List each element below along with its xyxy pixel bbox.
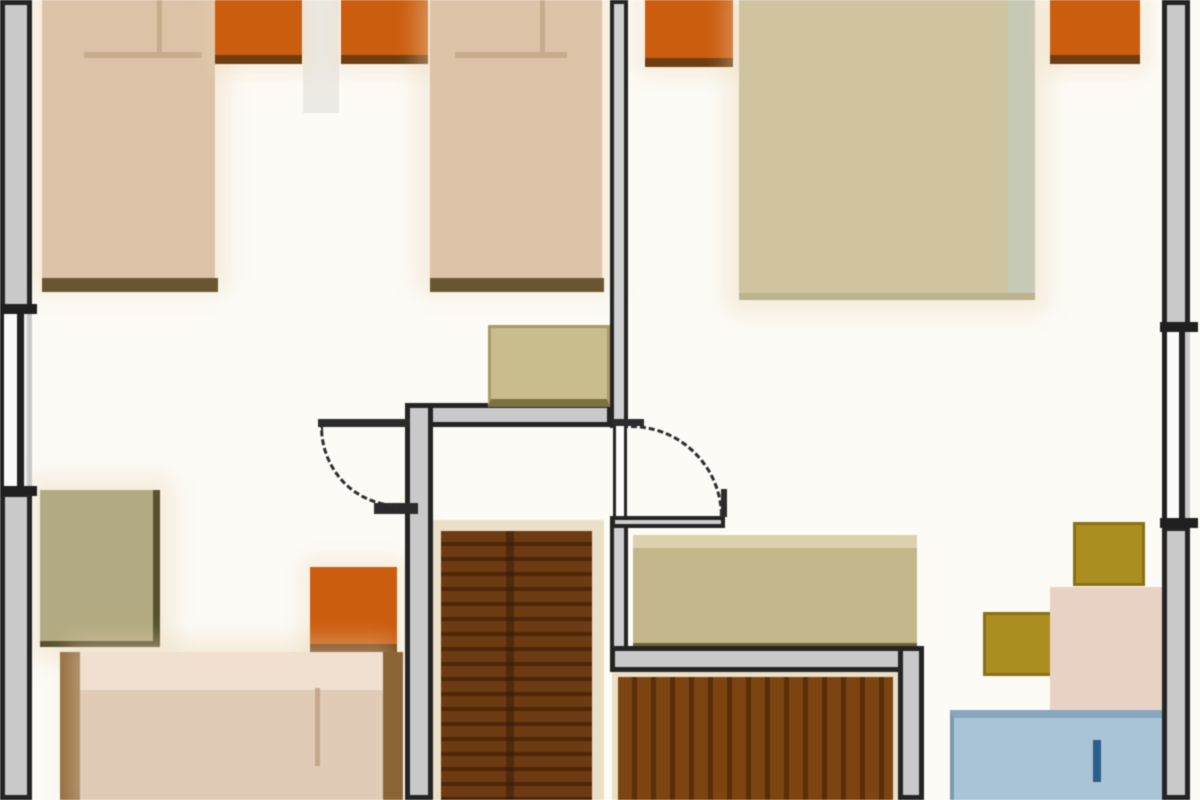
bed-3-crease	[315, 688, 320, 766]
wall-door-right-sill	[611, 516, 725, 528]
window-right-tick-top	[1160, 322, 1198, 332]
wall-stairwell2-top	[610, 646, 922, 672]
wall-center-lower	[610, 516, 628, 666]
bed-double-edge	[1008, 0, 1035, 293]
bed-3-pillow-band	[80, 652, 383, 690]
hall-cabinet	[488, 325, 610, 407]
wall-right-top	[1162, 0, 1190, 328]
bed-single-1-footboard	[42, 278, 218, 292]
wall-right-bottom	[1162, 526, 1190, 800]
staircase-1-treads	[441, 531, 592, 800]
window-right-tick-bottom	[1160, 518, 1198, 528]
wall-center-upper	[610, 0, 628, 428]
door-leaf-right	[613, 426, 627, 516]
staircase-1-stringer	[506, 531, 514, 800]
wall-hall-left	[405, 403, 433, 800]
door-arc-left	[320, 427, 398, 507]
sideboard	[633, 535, 917, 647]
window-left-tick-top	[0, 304, 37, 314]
bed-single-2-pillow-fold	[540, 0, 545, 54]
wardrobe-2	[341, 0, 428, 64]
wall-left-top	[0, 0, 32, 310]
wall-left-bottom	[0, 492, 32, 800]
bed-single-1-mattress	[42, 0, 215, 280]
bed-3-rail-right	[383, 652, 403, 800]
blue-furniture-handle	[1093, 740, 1101, 782]
bed-single-1-pillow-fold	[157, 0, 162, 54]
window-left	[0, 310, 32, 492]
bed-single-2-pillow-line	[455, 52, 567, 58]
bed-single-2-footboard	[430, 278, 604, 292]
blue-furniture	[950, 710, 1163, 800]
door-leaf-left	[318, 419, 410, 427]
cabinet-orange-small	[310, 567, 397, 653]
wardrobe-3	[645, 0, 733, 67]
room-divider-faint	[303, 0, 339, 113]
staircase-2-treads	[618, 677, 893, 800]
wardrobe-4	[1050, 0, 1140, 64]
door-arc-right	[631, 425, 723, 517]
desk	[40, 490, 160, 647]
floorplan-canvas	[0, 0, 1200, 800]
bed-double	[739, 0, 1035, 300]
chair-stool-2	[1073, 522, 1145, 586]
chair-stool-1	[983, 612, 1057, 676]
wall-stairwell2-right	[898, 646, 924, 800]
bed-single-2-mattress	[430, 0, 602, 280]
bed-3-rail-left	[60, 652, 80, 800]
window-left-tick-bottom	[0, 486, 37, 496]
bed-single-1-pillow-line	[84, 52, 202, 58]
window-right	[1162, 328, 1190, 526]
table-pink	[1050, 587, 1162, 710]
wardrobe-1	[215, 0, 302, 64]
